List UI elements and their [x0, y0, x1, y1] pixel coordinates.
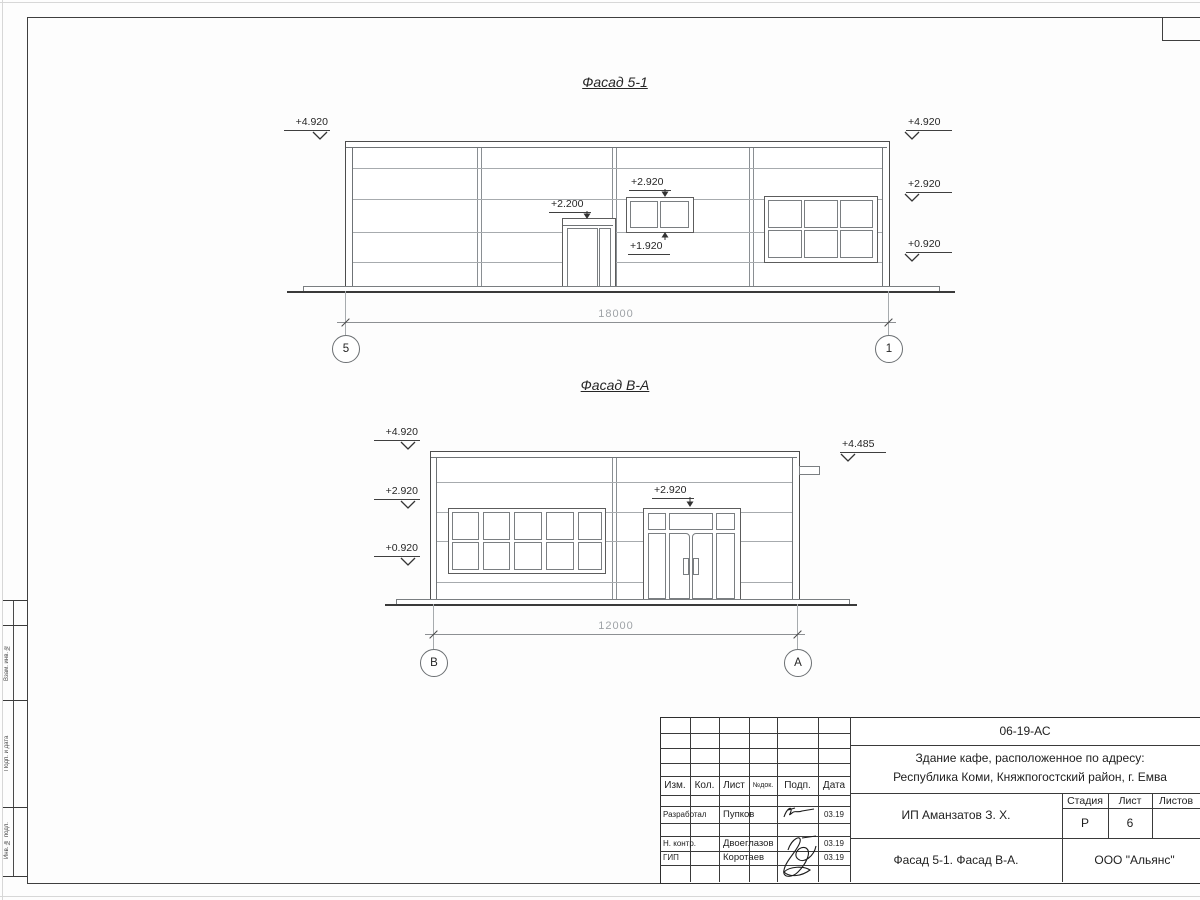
leader-arrow-icon [660, 189, 670, 197]
date-developer: 03.19 [818, 810, 850, 819]
elev-mark: +0.920 [906, 239, 952, 253]
col-list: Лист [719, 780, 749, 791]
elev-arrow-icon [904, 193, 920, 202]
list-label: Лист [1108, 795, 1152, 807]
dimension-12000: 12000 [560, 620, 672, 632]
facade-5-1-ground-line [287, 291, 955, 293]
role-gip: ГИП [663, 853, 679, 862]
signature-ncontrol-gip [778, 832, 820, 880]
role-ncontrol: Н. контр. [663, 839, 696, 848]
facade-5-1-title: Фасад 5-1 [545, 74, 685, 90]
organization-name: ООО "Альянс" [1062, 853, 1200, 867]
door-handle [693, 558, 699, 575]
leader-arrow-icon [660, 232, 670, 240]
elev-arrow-icon [400, 500, 416, 509]
stage-value: Р [1062, 816, 1108, 830]
elev-mark: +4.920 [906, 117, 952, 131]
axis-bubble-1: 1 [875, 335, 903, 363]
side-label-vzam: Взам. инв. № [4, 628, 10, 698]
elev-mark: +4.920 [284, 117, 330, 131]
client-name: ИП Аманзатов З. Х. [850, 808, 1062, 822]
elev-mark: +1.920 [628, 241, 670, 255]
elev-mark: +0.920 [374, 543, 420, 557]
col-kol: Кол. [690, 780, 719, 791]
elev-arrow-icon [840, 453, 856, 462]
dimension-18000: 18000 [560, 308, 672, 320]
leader-arrow-icon [685, 497, 695, 507]
elev-mark: +2.920 [906, 179, 952, 193]
name-gip: Коротаев [723, 852, 764, 863]
corner-stamp-box [1162, 18, 1200, 41]
listov-label: Листов [1152, 795, 1200, 807]
col-doc: №док. [749, 782, 777, 789]
roof-outlet [799, 466, 820, 475]
signature-developer [780, 804, 818, 822]
side-label-inv: Инв. № подл. [4, 809, 10, 873]
col-izm: Изм. [660, 780, 690, 791]
axis-bubble-5: 5 [332, 335, 360, 363]
col-podp: Подп. [777, 780, 818, 791]
date-gip: 03.19 [818, 853, 850, 862]
elev-mark: +2.920 [374, 486, 420, 500]
elev-mark: +4.920 [374, 427, 420, 441]
elev-arrow-icon [400, 557, 416, 566]
project-address-line2: Республика Коми, Княжпогостский район, г… [855, 770, 1200, 784]
role-developer: Разработал [663, 810, 707, 819]
elev-arrow-icon [312, 131, 328, 140]
stage-label: Стадия [1062, 795, 1108, 807]
elev-mark: +4.485 [840, 439, 886, 453]
drawing-sheet: Взам. инв. № Подп. и дата Инв. № подл. Ф… [0, 0, 1200, 900]
col-data: Дата [818, 780, 850, 791]
date-ncontrol: 03.19 [818, 839, 850, 848]
elev-arrow-icon [904, 253, 920, 262]
facade-b-a-ground-line [385, 604, 857, 606]
elev-arrow-icon [400, 441, 416, 450]
list-value: 6 [1108, 816, 1152, 830]
project-address-line1: Здание кафе, расположенное по адресу: [855, 751, 1200, 765]
facade-b-a-title: Фасад В-А [545, 377, 685, 393]
axis-bubble-B: В [420, 649, 448, 677]
name-developer: Пупков [723, 809, 754, 820]
leader-arrow-icon [582, 211, 592, 219]
side-label-podp: Подп. и дата [4, 703, 10, 803]
sheet-title: Фасад 5-1. Фасад В-А. [850, 853, 1062, 867]
axis-bubble-A: А [784, 649, 812, 677]
door-handle [683, 558, 689, 575]
doc-number: 06-19-АС [850, 724, 1200, 738]
name-ncontrol: Двоеглазов [723, 838, 774, 849]
elev-arrow-icon [904, 131, 920, 140]
